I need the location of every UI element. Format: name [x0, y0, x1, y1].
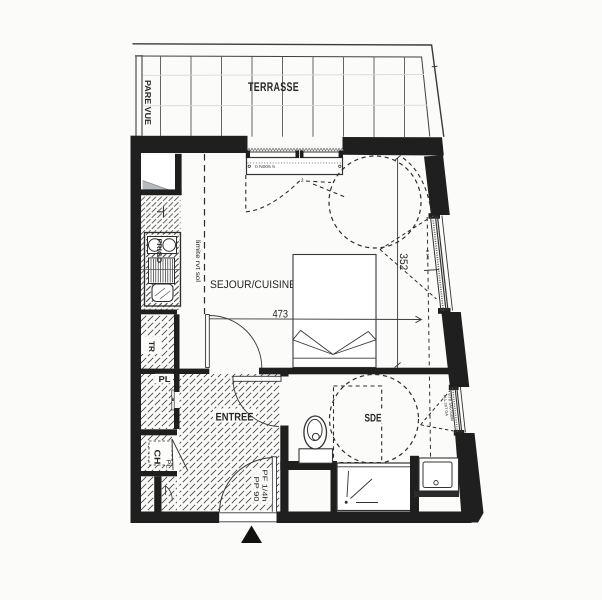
svg-text:B 14b: B 14b	[425, 250, 430, 260]
svg-text:CH: CH	[153, 450, 163, 465]
svg-text:PP 90: PP 90	[252, 477, 259, 502]
svg-text:473: 473	[273, 309, 289, 321]
svg-text:PARE VUE: PARE VUE	[143, 80, 153, 125]
svg-text:PL: PL	[159, 374, 171, 384]
svg-text:TR: TR	[147, 341, 156, 352]
svg-text:PF 1/4h: PF 1/4h	[261, 470, 269, 502]
svg-text:352: 352	[397, 253, 409, 270]
svg-text:limite rvt sol: limite rvt sol	[194, 240, 201, 283]
svg-text:TERRASSE: TERRASSE	[248, 80, 299, 94]
svg-text:SDE: SDE	[365, 413, 382, 425]
svg-text:0 N005 5: 0 N005 5	[255, 164, 276, 169]
svg-text:SEJOUR/CUISINE: SEJOUR/CUISINE	[210, 279, 296, 291]
svg-text:FRIGO: FRIGO	[155, 239, 162, 264]
svg-text:PL: PL	[165, 460, 172, 470]
